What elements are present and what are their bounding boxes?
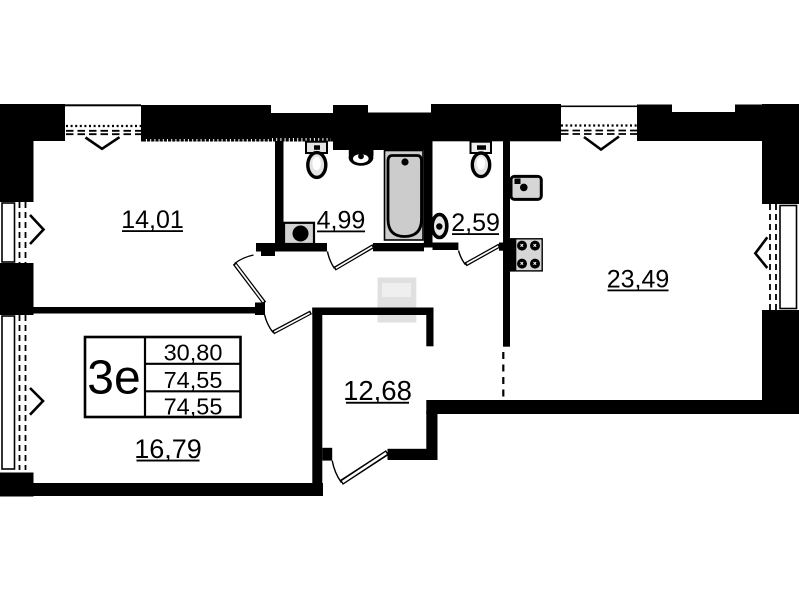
svg-text:2,59: 2,59 bbox=[451, 209, 500, 237]
svg-text:4,99: 4,99 bbox=[317, 206, 366, 234]
svg-text:14,01: 14,01 bbox=[121, 206, 184, 234]
svg-text:74,55: 74,55 bbox=[164, 367, 223, 393]
svg-text:16,79: 16,79 bbox=[134, 434, 202, 464]
svg-text:12,68: 12,68 bbox=[343, 375, 412, 406]
svg-text:3е: 3е bbox=[87, 352, 140, 405]
svg-text:30,80: 30,80 bbox=[164, 340, 223, 366]
svg-text:74,55: 74,55 bbox=[164, 394, 223, 420]
svg-text:23,49: 23,49 bbox=[607, 266, 670, 294]
